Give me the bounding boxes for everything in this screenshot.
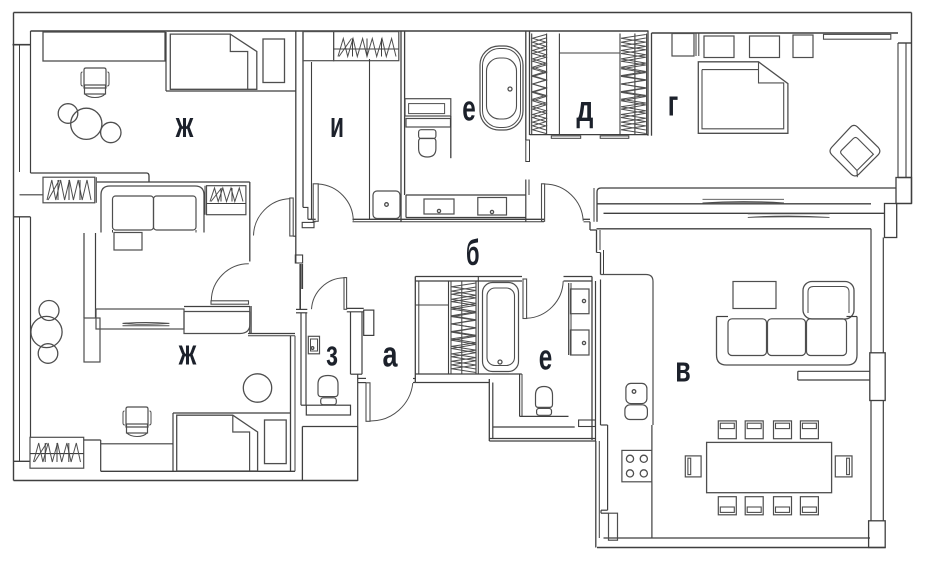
svg-text:б: б bbox=[466, 232, 480, 273]
svg-text:а: а bbox=[383, 334, 399, 375]
svg-text:в: в bbox=[675, 349, 691, 390]
svg-text:и: и bbox=[330, 104, 344, 145]
svg-text:г: г bbox=[668, 83, 679, 124]
svg-text:е: е bbox=[462, 87, 476, 128]
svg-text:ж: ж bbox=[178, 332, 197, 373]
svg-text:з: з bbox=[326, 333, 338, 374]
svg-text:ж: ж bbox=[175, 104, 194, 145]
svg-text:е: е bbox=[539, 337, 553, 378]
svg-text:д: д bbox=[576, 88, 593, 129]
